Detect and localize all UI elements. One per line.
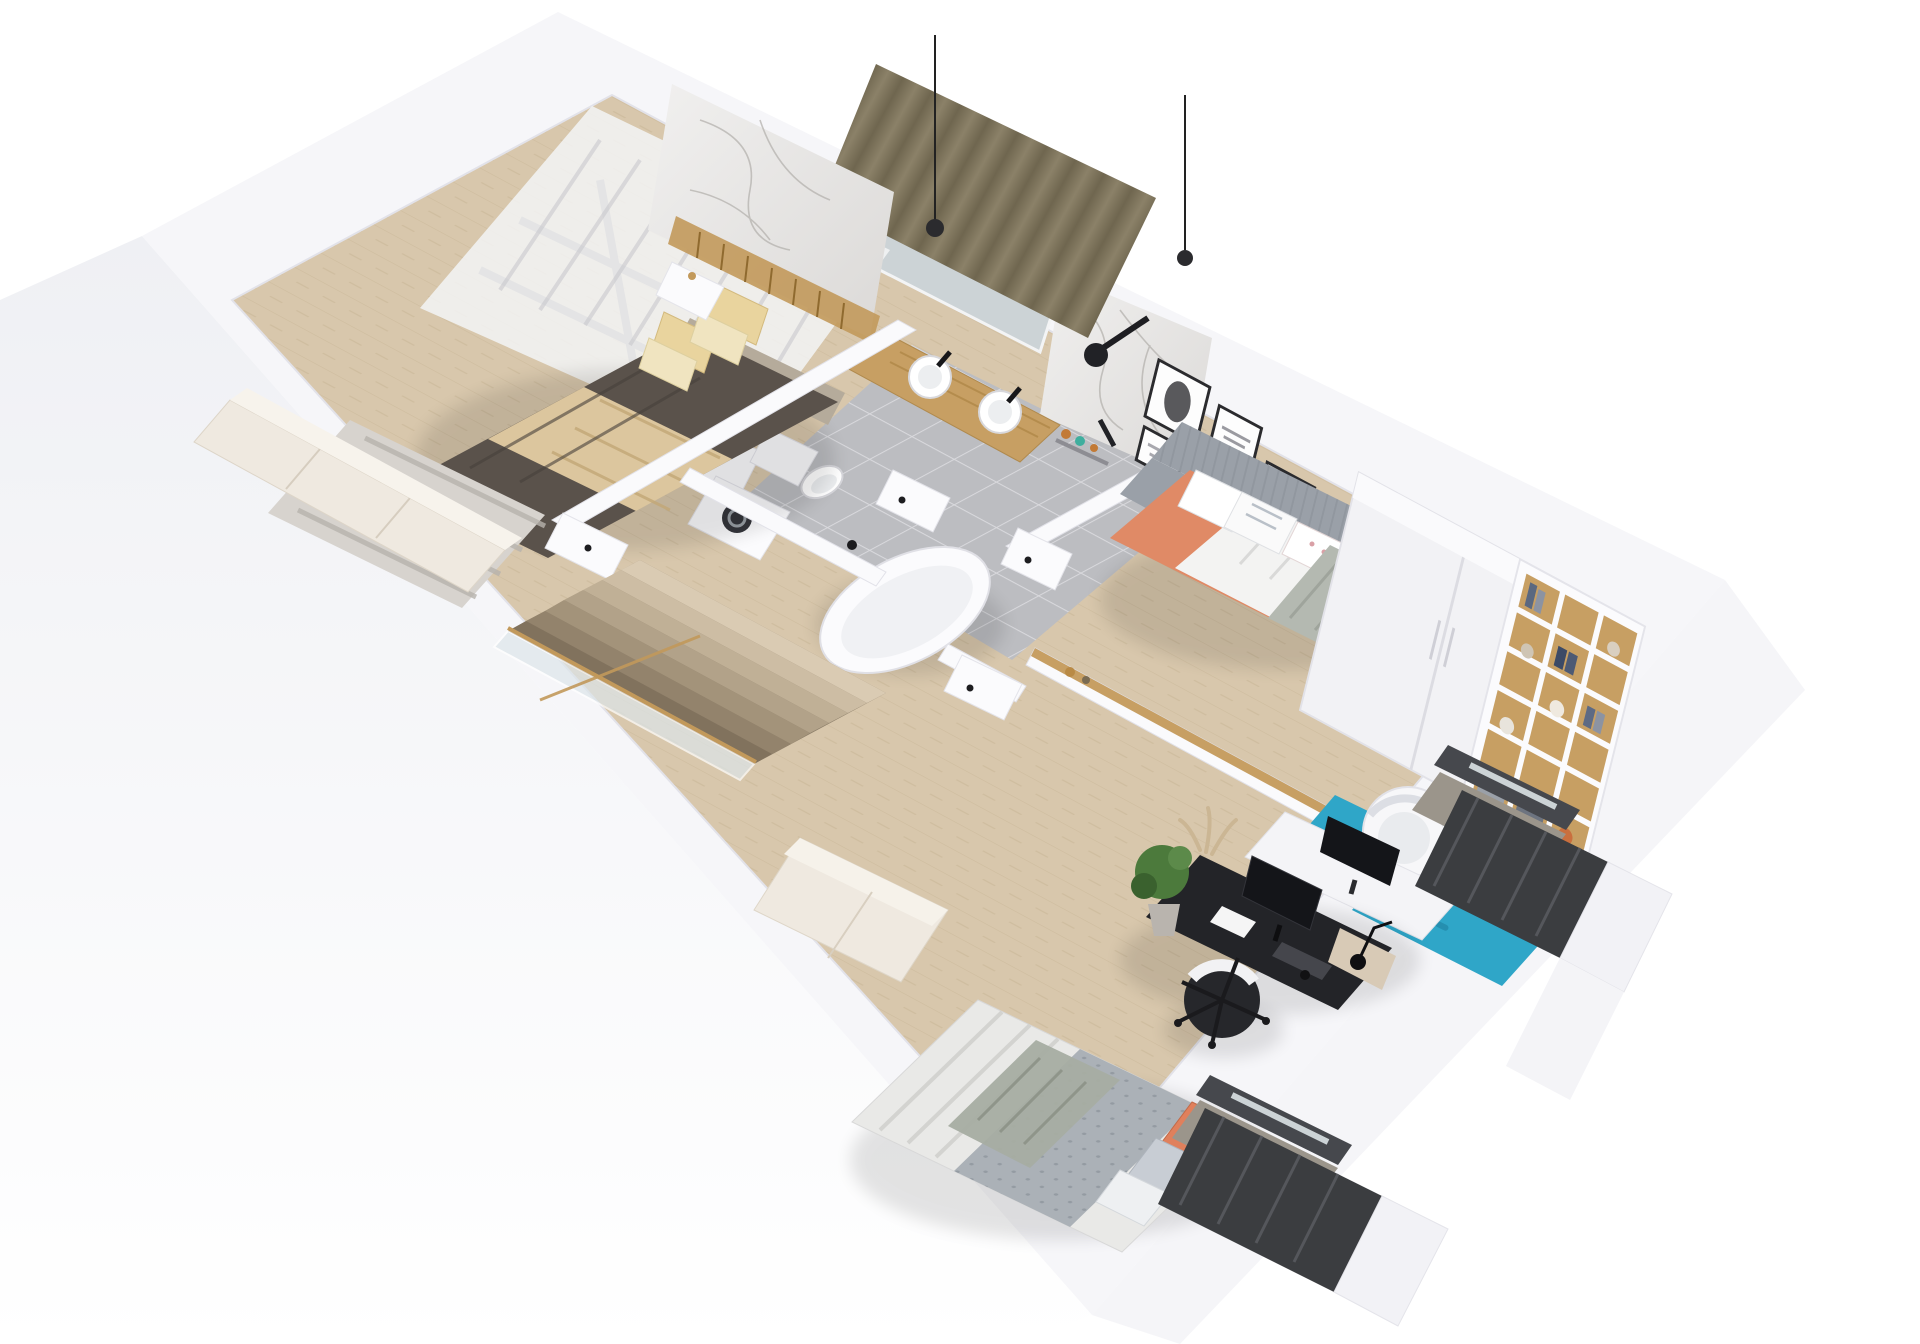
sink-left-basin [918,365,942,389]
master-door-handle [585,545,592,552]
ledge-bottle-2 [1082,676,1090,684]
bottle-amber-1 [1061,429,1071,439]
nightstand-vase [688,272,696,280]
floorplan-render [0,0,1920,1344]
bathroom-door-handle [899,497,906,504]
chair-caster-2 [1262,1017,1270,1025]
rain-shower-head [1084,343,1108,367]
floral-dot-1 [1310,542,1315,547]
pendant-shade [926,219,944,237]
teen-mouse [1300,970,1310,980]
teen-door-handle [967,685,974,692]
fiddle-plant-leaf-1 [1131,873,1157,899]
ledge-bottle-1 [1065,667,1075,677]
kids-door-handle [1025,557,1032,564]
bottle-amber-2 [1090,444,1098,452]
chair-caster-3 [1208,1041,1216,1049]
vanity-pendant-shade [1177,250,1193,266]
tub-faucet [847,540,857,550]
sink-right-basin [988,400,1012,424]
fiddle-plant-leaf-2 [1168,846,1192,870]
chair-caster-1 [1174,1019,1182,1027]
bottle-teal [1075,436,1085,446]
